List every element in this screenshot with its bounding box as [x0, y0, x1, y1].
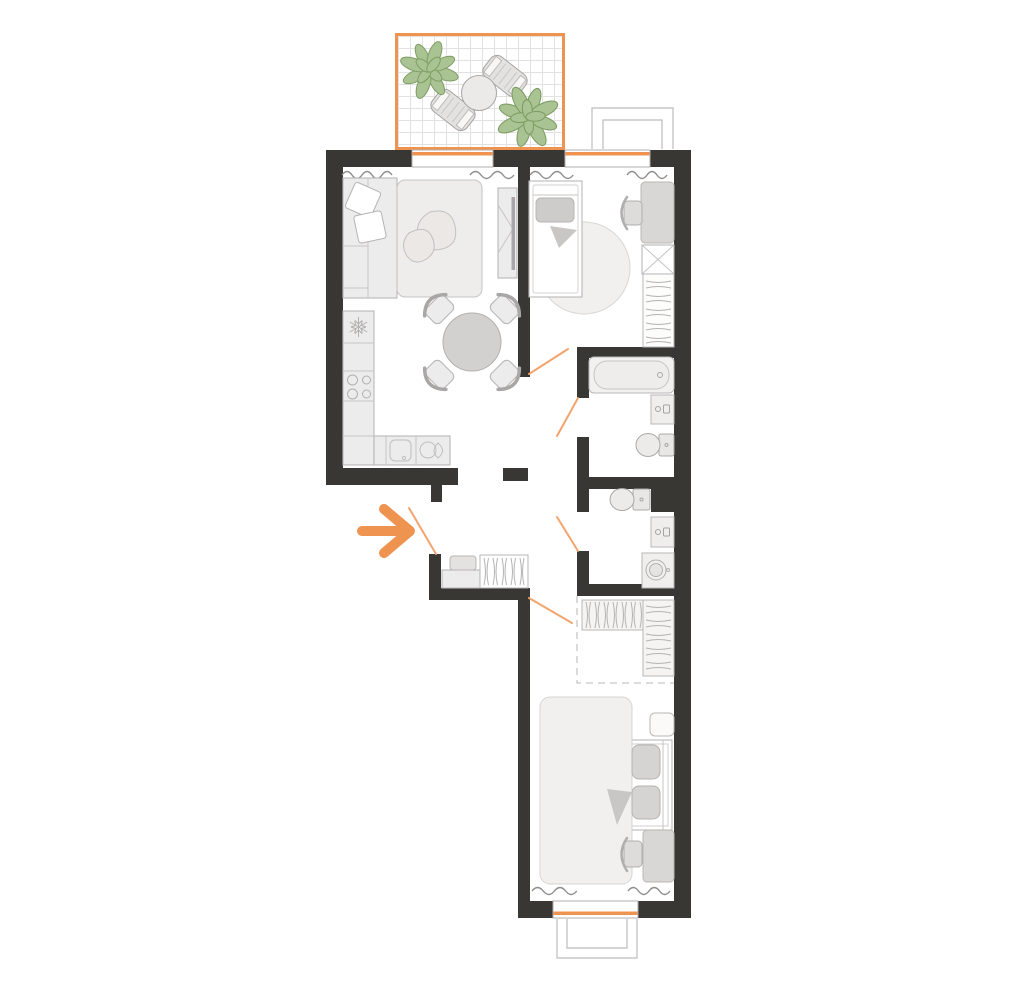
single-bed [529, 181, 582, 297]
wardrobe-rail-small [643, 274, 674, 347]
coat-rack [480, 555, 528, 588]
toilet-wc [610, 489, 650, 511]
dining-table [443, 313, 501, 371]
window-sill-box-bottom [557, 919, 637, 958]
corner-sofa [343, 178, 397, 298]
door-swing-bedroom-small [529, 349, 568, 374]
floor-plan [0, 0, 1024, 996]
balcony-table [462, 76, 497, 111]
entrance-arrow [362, 509, 410, 553]
door-swing-bathroom [557, 398, 578, 436]
nightstand [650, 713, 674, 736]
desk-chair [624, 201, 642, 225]
tv-console [498, 188, 517, 278]
tv [512, 197, 516, 270]
floor-plan-canvas [0, 0, 1024, 996]
wardrobe-x [642, 245, 674, 274]
balcony-door-window [412, 150, 493, 167]
washbasin-bathroom [651, 395, 674, 424]
washbasin-wc [651, 517, 674, 547]
desk-chair [624, 841, 642, 867]
toilet-bathroom [636, 434, 674, 457]
living-bed [397, 180, 482, 297]
washing-machine [642, 553, 674, 588]
wardrobe-rail-master [582, 600, 643, 630]
desk-small-bedroom [622, 182, 675, 243]
window-sill-box-top [592, 108, 673, 149]
door-swing-wc [557, 517, 578, 551]
bedroom-master-window [553, 901, 638, 918]
wardrobe-shelves-master [643, 600, 674, 676]
bathtub [589, 357, 674, 393]
door-swing-bedroom-master [529, 598, 572, 623]
shoe-bench [442, 556, 480, 588]
pillow [536, 198, 574, 222]
bedroom-small-window [565, 150, 650, 167]
pillow [632, 786, 660, 819]
pillow [632, 745, 660, 779]
